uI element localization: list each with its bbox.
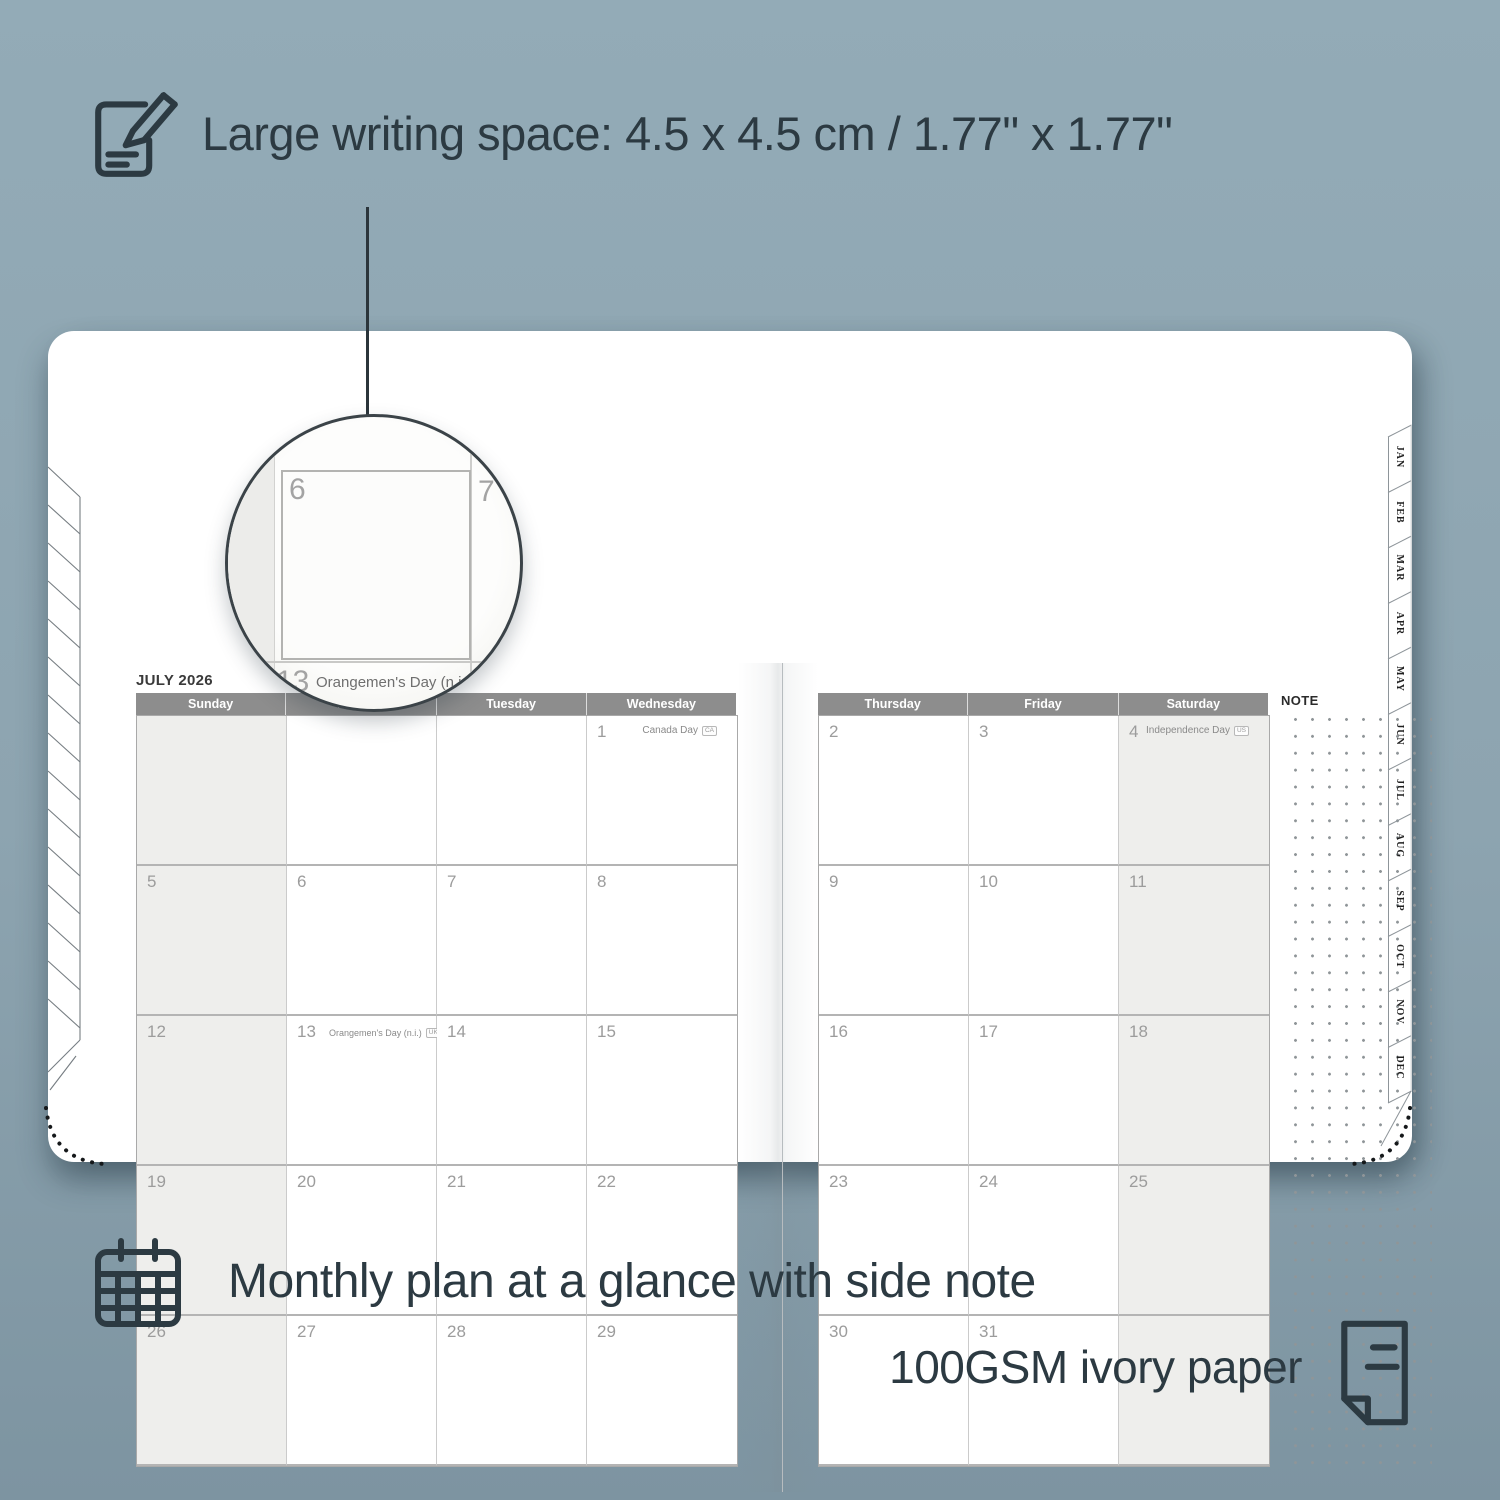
date-number: 24 (979, 1172, 998, 1192)
left-calendar-cell: 27 (287, 1316, 437, 1466)
date-number: 21 (447, 1172, 466, 1192)
date-number: 10 (979, 872, 998, 892)
date-number: 20 (297, 1172, 316, 1192)
date-number: 9 (829, 872, 838, 892)
left-calendar-cell: 8 (587, 866, 737, 1016)
left-calendar-cell: 29 (587, 1316, 737, 1466)
page-fold (738, 663, 818, 1492)
date-number: 27 (297, 1322, 316, 1342)
left-calendar-cell: 6 (287, 866, 437, 1016)
writing-space-box (281, 470, 471, 660)
date-number: 29 (597, 1322, 616, 1342)
feature-writing-text: Large writing space: 4.5 x 4.5 cm / 1.77… (202, 106, 1172, 161)
right-day-header-row: ThursdayFridaySaturday (818, 693, 1268, 715)
magnifier-circle: 6 7 13 Orangemen's Day (n.i.) UK (225, 414, 523, 712)
left-calendar-cell (437, 716, 587, 866)
right-header-thursday: Thursday (818, 693, 967, 715)
date-number: 12 (147, 1022, 166, 1042)
right-calendar-cell: 3 (969, 716, 1119, 866)
left-calendar-cell: 14 (437, 1016, 587, 1166)
holiday-country-badge: US (1234, 726, 1249, 736)
magnified-date-13: 13 (276, 665, 309, 699)
magnified-date-6: 6 (289, 473, 306, 507)
right-calendar-cell: 11 (1119, 866, 1269, 1016)
date-number: 6 (297, 872, 306, 892)
date-number: 18 (1129, 1022, 1148, 1042)
date-number: 31 (979, 1322, 998, 1342)
date-number: 2 (829, 722, 838, 742)
left-calendar-cell: 7 (437, 866, 587, 1016)
holiday-label: Canada DayCA (642, 725, 717, 736)
right-calendar-cell: 17 (969, 1016, 1119, 1166)
right-calendar-cell: 2 (819, 716, 969, 866)
date-number: 15 (597, 1022, 616, 1042)
date-number: 23 (829, 1172, 848, 1192)
magnified-row-line (228, 661, 520, 663)
notepad-pencil-icon (88, 82, 190, 186)
calendar-grid-icon (86, 1232, 190, 1332)
date-number: 30 (829, 1322, 848, 1342)
right-header-friday: Friday (967, 693, 1117, 715)
callout-connector-line (366, 207, 369, 417)
holiday-label: Orangemen's Day (n.i.)UK (329, 1028, 441, 1038)
left-calendar-cell (287, 716, 437, 866)
paper-sheet-icon (1332, 1316, 1414, 1430)
left-calendar-cell: 28 (437, 1316, 587, 1466)
holiday-label: Independence DayUS (1146, 725, 1249, 736)
right-calendar-cell: 25 (1119, 1166, 1269, 1316)
magnified-weekend-edge (228, 417, 275, 709)
left-calendar-cell: 13Orangemen's Day (n.i.)UK (287, 1016, 437, 1166)
right-calendar-cell: 4Independence DayUS (1119, 716, 1269, 866)
date-number: 11 (1129, 872, 1147, 892)
feature-paper-text: 100GSM ivory paper (889, 1340, 1302, 1394)
month-title: JULY 2026 (136, 672, 213, 689)
right-calendar-cell: 18 (1119, 1016, 1269, 1166)
holiday-country-badge: CA (702, 726, 717, 736)
holiday-country-badge: UK (476, 676, 497, 690)
left-calendar-grid: 1Canada DayCA56781213Orangemen's Day (n.… (136, 715, 738, 1467)
date-number: 3 (979, 722, 988, 742)
date-number: 8 (597, 872, 606, 892)
right-calendar-cell: 16 (819, 1016, 969, 1166)
left-header-tuesday: Tuesday (436, 693, 586, 715)
date-number: 28 (447, 1322, 466, 1342)
product-image-canvas: Large writing space: 4.5 x 4.5 cm / 1.77… (0, 0, 1500, 1500)
date-number: 14 (447, 1022, 466, 1042)
date-number: 7 (447, 872, 456, 892)
date-number: 22 (597, 1172, 616, 1192)
left-calendar-cell: 15 (587, 1016, 737, 1166)
right-header-saturday: Saturday (1118, 693, 1268, 715)
date-number: 13 (297, 1022, 316, 1042)
left-calendar-cell: 5 (137, 866, 287, 1016)
date-number: 19 (147, 1172, 166, 1192)
left-calendar-cell (137, 716, 287, 866)
left-header-wednesday: Wednesday (586, 693, 736, 715)
note-label: NOTE (1281, 693, 1319, 708)
date-number: 5 (147, 872, 156, 892)
right-calendar-cell: 10 (969, 866, 1119, 1016)
date-number: 16 (829, 1022, 848, 1042)
magnified-holiday-label: Orangemen's Day (n.i.) UK (316, 674, 496, 691)
date-number: 17 (979, 1022, 998, 1042)
date-number: 25 (1129, 1172, 1148, 1192)
date-number: 4 (1129, 722, 1138, 742)
right-calendar-cell: 9 (819, 866, 969, 1016)
feature-monthly-text: Monthly plan at a glance with side note (228, 1254, 1036, 1309)
date-number: 1 (597, 722, 606, 742)
magnified-date-7: 7 (478, 475, 495, 509)
left-calendar-cell: 12 (137, 1016, 287, 1166)
left-calendar-cell: 1Canada DayCA (587, 716, 737, 866)
left-calendar-cell: 26 (137, 1316, 287, 1466)
